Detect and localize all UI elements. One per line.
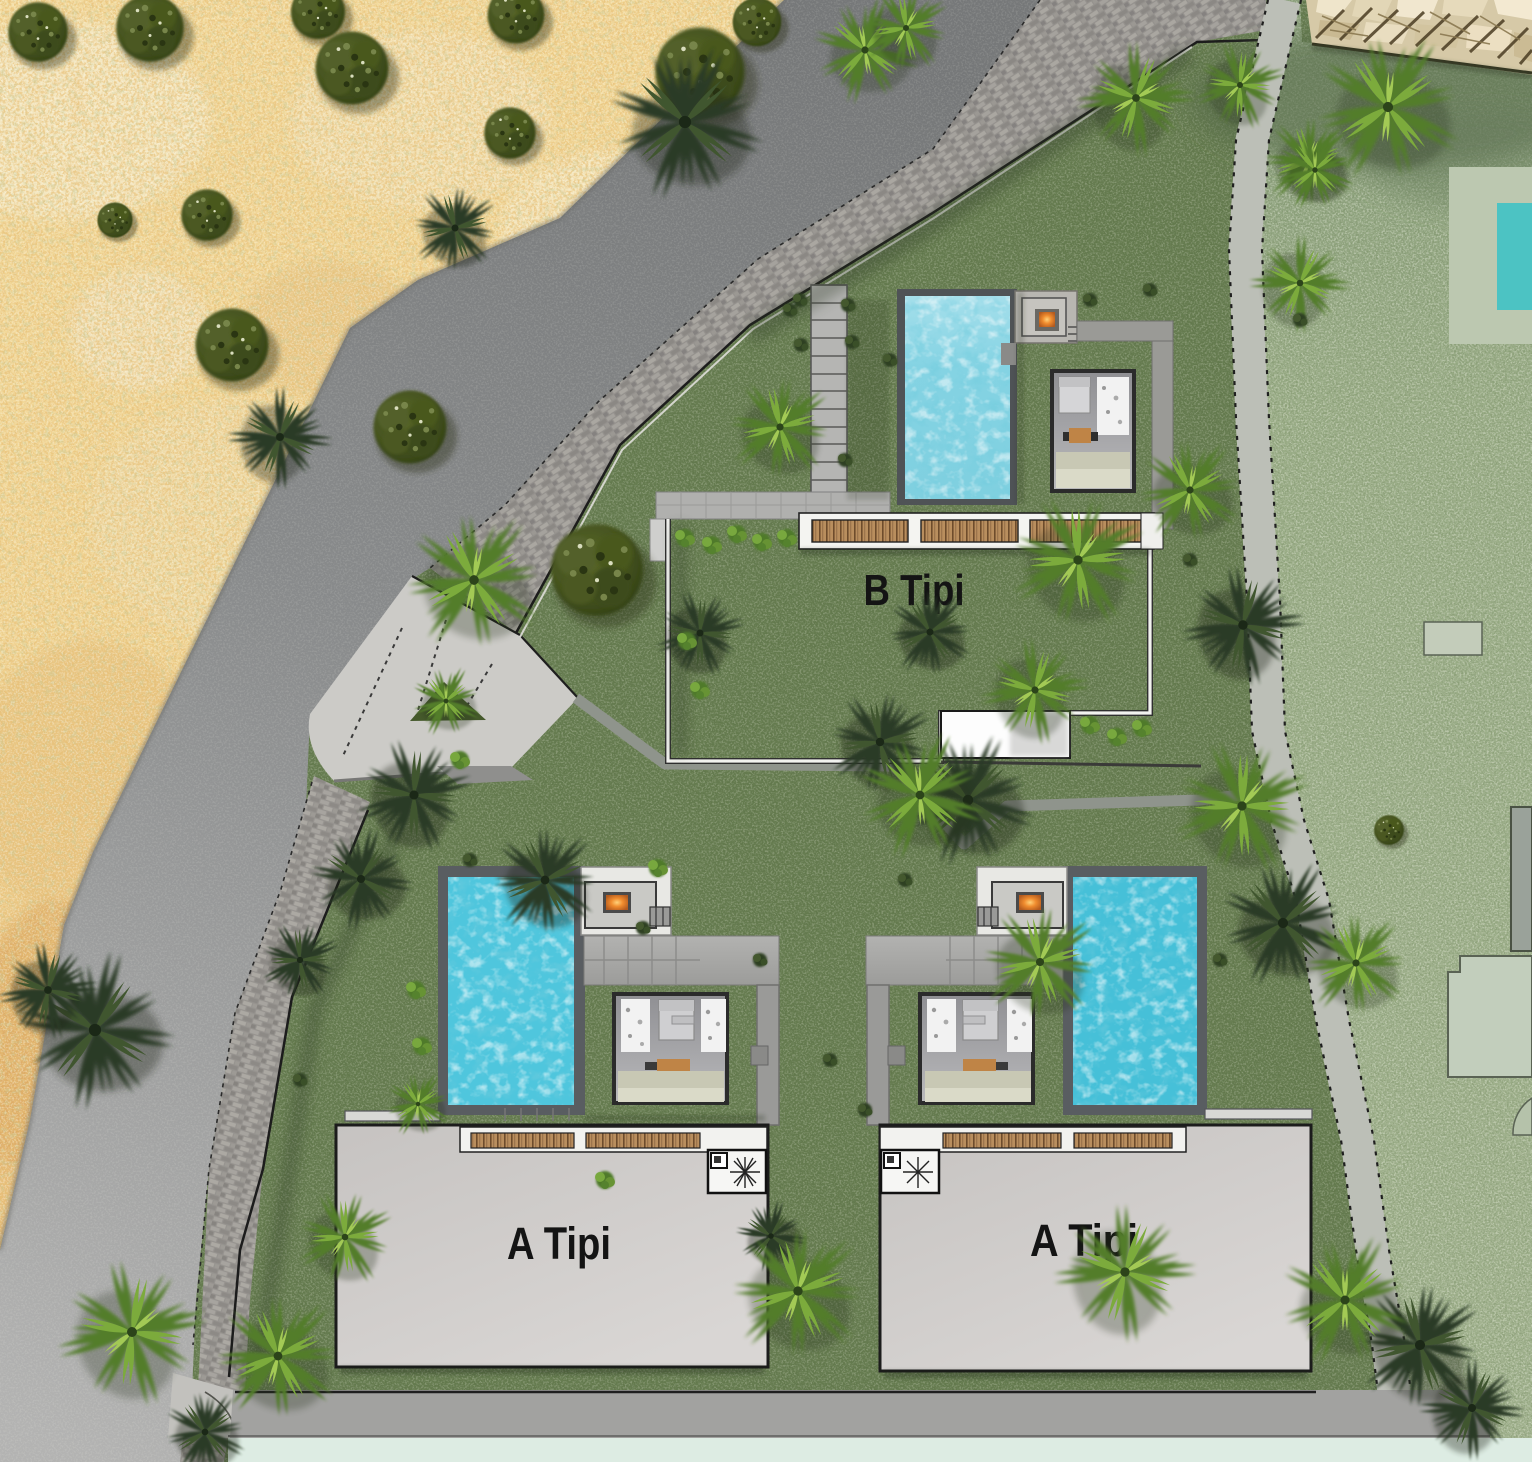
svg-text:A Tipi: A Tipi	[507, 1218, 611, 1269]
